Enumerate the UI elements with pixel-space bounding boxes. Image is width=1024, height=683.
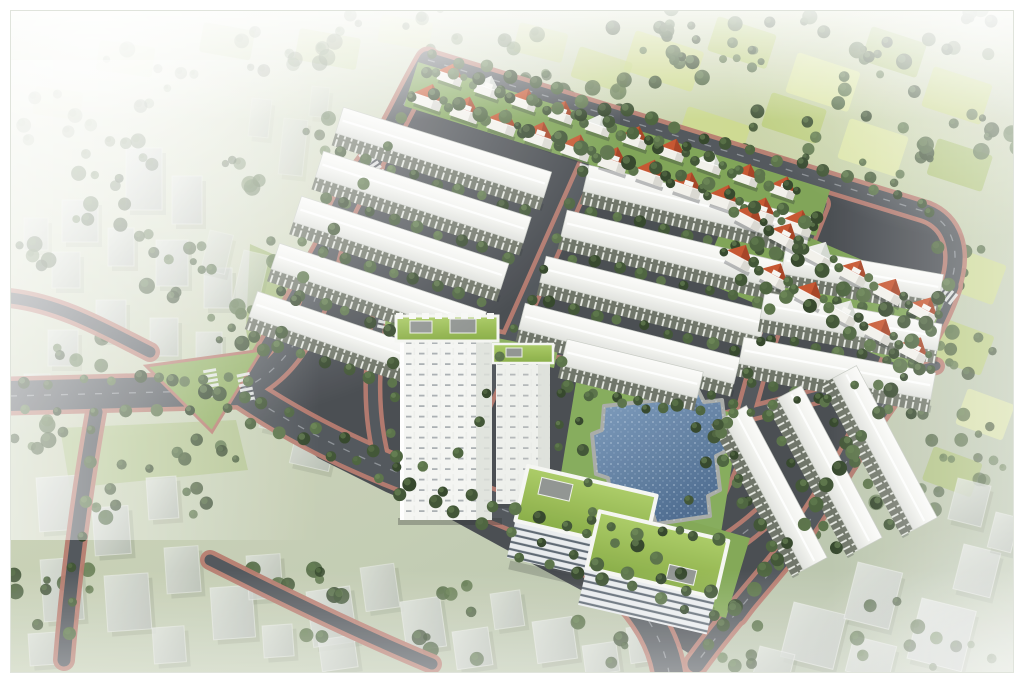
rendering-canvas — [0, 0, 1024, 683]
masterplan-rendering — [0, 0, 1024, 683]
mist-overlays — [0, 0, 1024, 683]
